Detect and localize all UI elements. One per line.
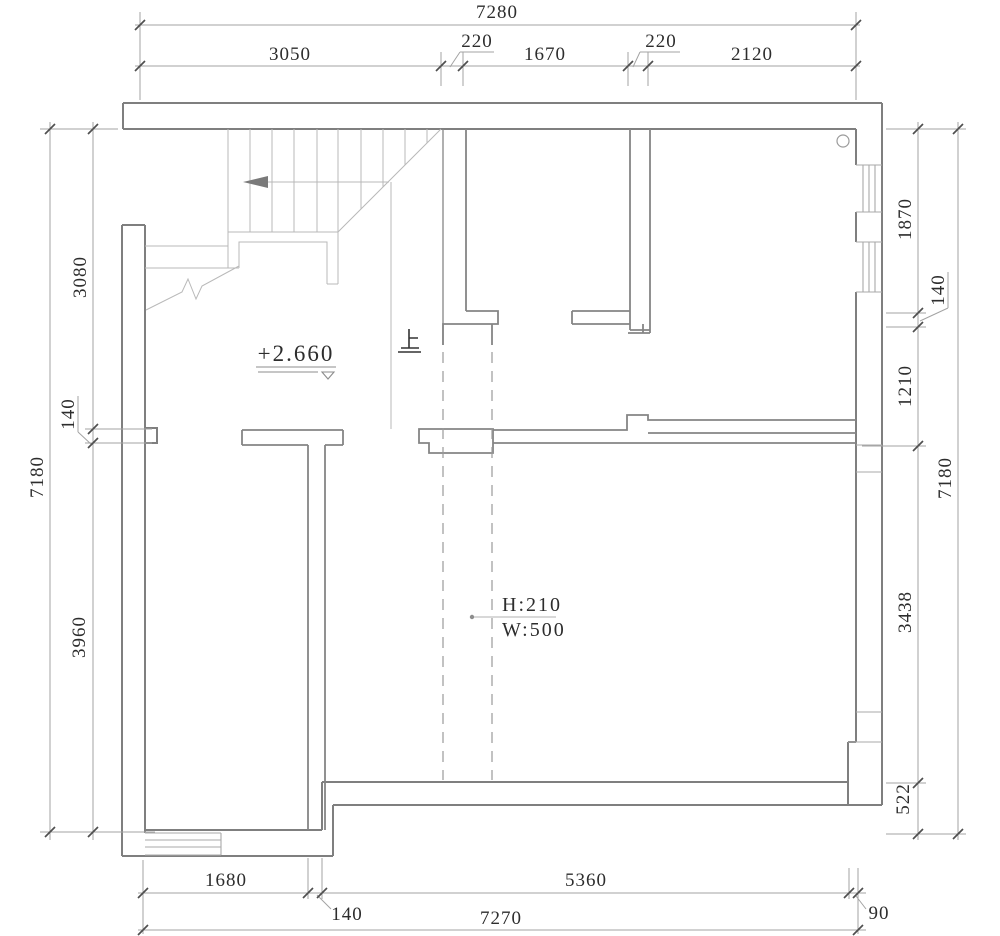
opening-width-label: W:500 <box>502 619 566 641</box>
exterior-walls <box>122 103 882 856</box>
dim-top-segment-1: 3050 <box>269 44 311 65</box>
dimension-ticks <box>45 20 963 935</box>
dim-left-segment-3: 3960 <box>69 616 90 658</box>
dim-right-segment-5: 522 <box>893 783 914 815</box>
floor-plan-canvas: +2.660 H:210 W:500 7280 3050 220 1670 22… <box>0 0 1000 936</box>
ceiling-fixture-icon <box>837 135 849 147</box>
stair-direction-arrow-icon <box>243 176 268 188</box>
dim-right-segment-2: 140 <box>928 274 949 306</box>
opening-annotation-group: H:210 W:500 <box>470 594 566 641</box>
dimension-labels: 7280 3050 220 1670 220 2120 7180 3080 14… <box>27 2 956 929</box>
opening-height-label: H:210 <box>502 594 562 616</box>
leader-dot <box>470 615 474 619</box>
dim-top-overall: 7280 <box>476 2 518 23</box>
level-annotation-group: +2.660 <box>256 341 336 379</box>
dim-top-segment-4: 220 <box>645 31 677 52</box>
staircase <box>145 129 441 429</box>
dim-top-segment-2: 220 <box>461 31 493 52</box>
window-hatches <box>145 165 882 855</box>
dim-left-segment-1: 3080 <box>70 256 91 298</box>
dim-bottom-segment-2: 140 <box>331 904 363 925</box>
level-annotation: +2.660 <box>258 341 335 366</box>
stairs-up-label <box>398 329 421 352</box>
dim-top-segment-5: 2120 <box>731 44 773 65</box>
dimension-lines <box>40 12 966 934</box>
dim-bottom-segment-1: 1680 <box>205 870 247 891</box>
dim-right-segment-3: 1210 <box>895 365 916 407</box>
dim-right-segment-4: 3438 <box>895 591 916 633</box>
dim-right-segment-1: 1870 <box>895 198 916 240</box>
dim-top-segment-3: 1670 <box>524 44 566 65</box>
dim-right-overall: 7180 <box>935 457 956 499</box>
floor-plan-drawing: +2.660 H:210 W:500 7280 3050 220 1670 22… <box>0 0 1000 936</box>
dim-left-segment-2: 140 <box>58 398 79 430</box>
dim-left-overall: 7180 <box>27 456 48 498</box>
dim-bottom-overall: 7270 <box>480 908 522 929</box>
interior-partitions <box>242 129 856 830</box>
dim-bottom-segment-4: 90 <box>869 903 890 924</box>
dim-bottom-segment-3: 5360 <box>565 870 607 891</box>
opening-projection-dashed-lines <box>443 352 492 780</box>
